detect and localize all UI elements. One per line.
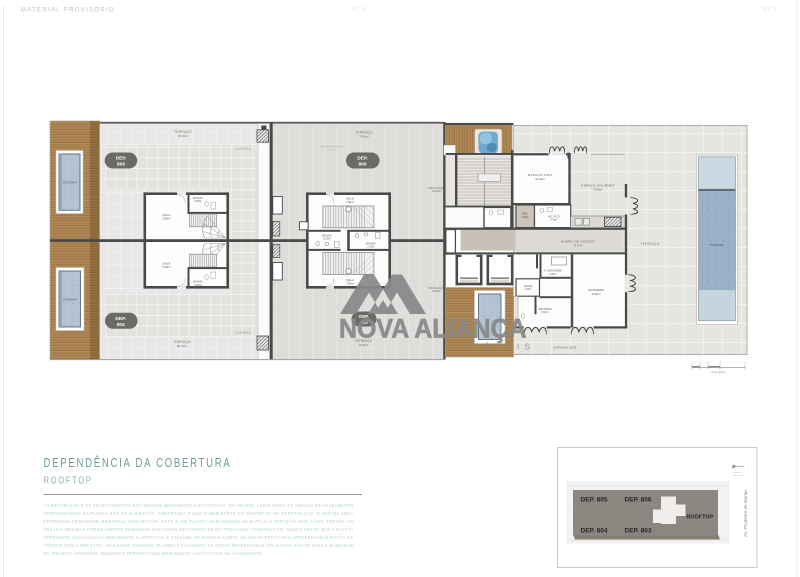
svg-text:Av. Prudente de Morais: Av. Prudente de Morais (743, 489, 748, 537)
svg-text:3.14m²: 3.14m² (550, 219, 557, 222)
svg-text:DEP.: DEP. (357, 155, 368, 161)
svg-text:9.36m²: 9.36m² (162, 265, 170, 269)
svg-text:DEP. 805: DEP. 805 (581, 497, 608, 504)
svg-text:3: 3 (719, 363, 721, 365)
svg-text:ACORDO COM A NBR 12721, INCLUI: ACORDO COM A NBR 12721, INCLUINDO PAREDE… (44, 543, 354, 548)
svg-text:ENTREGUE CONFORME MEMORIAL DES: ENTREGUE CONFORME MEMORIAL DESCRITIVO. E… (44, 519, 354, 524)
svg-text:DEP. 803: DEP. 803 (625, 528, 652, 535)
svg-text:CLARABÓIA: CLARABÓIA (234, 148, 251, 151)
svg-text:6.91m²: 6.91m² (541, 311, 548, 314)
svg-text:2.55m²: 2.55m² (194, 284, 202, 287)
svg-text:2.55m²: 2.55m² (194, 200, 202, 203)
svg-text:DEP.: DEP. (115, 316, 126, 322)
svg-text:12.80m²: 12.80m² (327, 148, 335, 151)
svg-text:PISCINA: PISCINA (710, 243, 723, 247)
svg-text:1.39m²: 1.39m² (521, 216, 528, 219)
svg-text:* A DECORAÇÃO E OS REVESTIMENT: * A DECORAÇÃO E OS REVESTIMENTOS DOS IMÓ… (44, 503, 354, 508)
svg-text:806: 806 (358, 162, 366, 168)
svg-text:ESPAÇO ZEN: ESPAÇO ZEN (554, 346, 577, 350)
svg-text:82'D: 82'D (763, 7, 777, 13)
svg-text:1: 1 (699, 363, 701, 365)
svg-text:0: 0 (691, 363, 693, 365)
svg-text:ÁREAS E MEDIDAS PODEM SOFRER P: ÁREAS E MEDIDAS PODEM SOFRER PEQUENAS VA… (44, 527, 354, 532)
svg-text:ROOFTOP: ROOFTOP (687, 515, 714, 521)
svg-text:DEP.: DEP. (116, 155, 127, 161)
svg-text:73.46m²: 73.46m² (593, 188, 603, 192)
svg-text:71.77m²: 71.77m² (573, 244, 583, 248)
svg-text:86.19m²: 86.19m² (177, 344, 187, 348)
svg-text:75.06m²: 75.06m² (359, 134, 369, 138)
svg-text:DEPENDÊNCIA DA COBERTURA: DEPENDÊNCIA DA COBERTURA (44, 455, 232, 470)
svg-text:DEP. 804: DEP. 804 (581, 528, 608, 535)
svg-text:WC. PC.D: WC. PC.D (548, 215, 560, 218)
svg-text:I M Ó V E I S: I M Ó V E I S (464, 342, 530, 352)
svg-text:2: 2 (707, 363, 709, 365)
svg-text:9.36m²: 9.36m² (162, 217, 170, 221)
svg-text:VESTIÁRIO: VESTIÁRIO (538, 308, 551, 311)
svg-text:15.58m²: 15.58m² (432, 290, 441, 293)
svg-text:3.15m²: 3.15m² (367, 246, 375, 249)
svg-text:PISCINA: PISCINA (63, 181, 76, 185)
svg-text:81'S: 81'S (352, 7, 366, 13)
svg-text:DEP. 806: DEP. 806 (625, 497, 652, 504)
svg-text:CASA DE MÁQUINAS: CASA DE MÁQUINAS (320, 146, 343, 149)
svg-text:ESPAÇO GOURMET: ESPAÇO GOURMET (581, 184, 615, 188)
svg-text:DML: DML (522, 213, 528, 216)
svg-text:3.15m²: 3.15m² (323, 238, 331, 241)
svg-text:RAMPA DE ACESSO: RAMPA DE ACESSO (561, 240, 595, 244)
svg-text:APRESENTA LOCALIZAÇÃO MERAMENT: APRESENTA LOCALIZAÇÃO MERAMENTE ILUSTRAT… (44, 535, 354, 540)
svg-text:7.86m²: 7.86m² (346, 281, 354, 285)
svg-text:TERRAÇO: TERRAÇO (355, 130, 373, 134)
svg-text:PISCINA: PISCINA (64, 298, 77, 302)
svg-text:SALA: SALA (346, 196, 355, 200)
svg-text:SALA: SALA (163, 261, 172, 265)
svg-text:ROOFTOP: ROOFTOP (44, 476, 93, 487)
svg-text:805: 805 (117, 162, 125, 168)
svg-text:86.19m²: 86.19m² (178, 134, 188, 138)
svg-text:SAUNA: SAUNA (524, 285, 533, 288)
svg-text:ACADEMIA: ACADEMIA (588, 288, 605, 292)
svg-text:TERRAÇO: TERRAÇO (640, 242, 659, 246)
svg-text:15.58m²: 15.58m² (432, 190, 441, 193)
svg-text:NO PROJETO APROVADO. IMAGENS E: NO PROJETO APROVADO. IMAGENS E PERSPECTI… (44, 551, 264, 556)
svg-text:SALA: SALA (346, 278, 355, 282)
svg-text:S. MASSAGEM: S. MASSAGEM (544, 270, 562, 273)
svg-text:SALA: SALA (163, 213, 172, 217)
svg-text:CLARABÓIA: CLARABÓIA (234, 332, 251, 335)
svg-text:TERRAÇO: TERRAÇO (173, 340, 191, 344)
svg-text:5.86m²: 5.86m² (549, 273, 556, 276)
svg-text:TERRAÇO: TERRAÇO (174, 130, 192, 134)
svg-text:11.96m²: 11.96m² (591, 292, 600, 296)
svg-text:16.26m²: 16.26m² (535, 177, 545, 181)
svg-text:ESPAÇO KIDS: ESPAÇO KIDS (528, 173, 552, 177)
svg-text:escala gráfica: escala gráfica (711, 371, 726, 374)
svg-text:MATERIAL PROVISÓRIO: MATERIAL PROVISÓRIO (21, 5, 115, 14)
svg-text:804: 804 (117, 322, 125, 328)
svg-text:APRESENTADOS NA PLANTA SÃO DE: APRESENTADOS NA PLANTA SÃO DE SUGESTÃO, … (44, 511, 354, 516)
svg-text:5: 5 (744, 363, 746, 365)
svg-text:NOVA ALIANÇA: NOVA ALIANÇA (339, 314, 527, 344)
svg-text:3.78m²: 3.78m² (524, 288, 531, 291)
svg-text:7.86m²: 7.86m² (346, 200, 354, 204)
